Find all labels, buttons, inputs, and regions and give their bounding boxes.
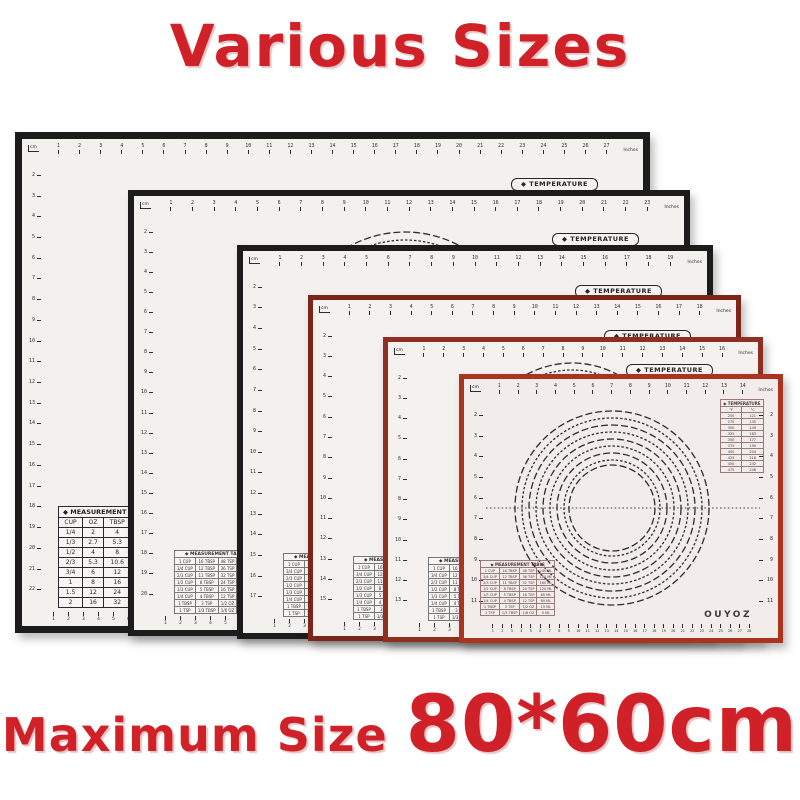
ruler-tick-mark [649,390,650,394]
ruler-tick-mark [374,150,375,154]
ruler-tick-mark [403,560,407,561]
ruler-tick-mark [495,207,496,211]
ruler-tick-mark [686,390,687,394]
ruler-tick: 23 [512,144,533,154]
ruler-tick: 11 [27,351,41,372]
ruler-tick: 22 [615,201,637,211]
ruler-tick-number: 15 [248,553,256,558]
ruler-tick-number: 22 [623,201,629,206]
ruler-tick-mark [149,292,153,293]
ruler-tick-number: 3 [82,617,85,622]
ruler-tick-number: 2 [78,144,81,149]
ruler-tick-mark [479,436,483,437]
ruler-tick-number: 14 [449,201,455,206]
ruler-tick-mark [279,262,280,266]
ruler-tick: 2 [509,384,528,394]
ruler-tick-mark [225,616,226,620]
measurement-table: ◆ MEASUREMENT TABLE1 CUP16 TBSP48 TSP240… [480,560,555,616]
ruler-tick-number: 7 [469,516,477,521]
ruler-tick-mark [561,262,562,266]
table-cell: 1/2 OZ [218,600,237,607]
ruler-tick-mark [328,478,332,479]
ruler-tick-number: 10 [248,450,256,455]
ruler-tick-number: 5 [139,290,147,295]
ruler-tick: 5 [218,616,233,626]
left-ruler: 2345678910111213141516171819202122 [27,165,41,600]
ruler-tick: 2 [282,619,297,629]
ruler-tick-mark [409,207,410,211]
table-cell: 12 TSP [218,593,237,600]
ruler-tick-number: 7 [184,144,187,149]
top-ruler: 1234567891011121314151617181920212223 [160,201,658,211]
ruler-tick-number: 8 [205,144,208,149]
table-cell: 1/2 CUP [284,582,305,589]
ruler-tick-number: 13 [248,512,256,517]
ruler-tick: 11 [139,403,153,423]
unit-label-cm: cm [394,348,405,355]
ruler-tick-mark [483,353,484,357]
ruler-tick-number: 21 [681,629,685,634]
table-cell: 1/2 CUP [175,579,196,586]
ruler-tick-number: 1 [278,256,281,261]
ruler-tick-mark [543,150,544,154]
table-cell: 1/3 TBSP [195,607,218,614]
ruler-tick: 8 [393,490,407,510]
ruler-tick-mark [149,332,153,333]
ruler-tick: 6 [393,449,407,469]
ruler-tick: 18 [406,144,427,154]
ruler-tick-mark [759,498,763,499]
ruler-tick-number: 2 [248,285,256,290]
ruler-tick-number: 22 [27,587,35,592]
table-cell: 48 TSP [218,558,237,565]
brand-logo: OUYOZ [704,610,752,620]
ruler-tick: 15 [692,347,712,357]
ruler-tick-number: 27 [738,629,742,634]
ruler-tick-number: 1 [169,201,172,206]
ruler-tick: 17 [139,524,153,544]
ruler-tick-mark [453,262,454,266]
ruler-tick-mark [328,599,332,600]
ruler-tick: 4 [474,347,494,357]
table-cell: 1 TBSP [284,603,305,610]
ruler-tick-number: 23 [519,144,525,149]
ruler-tick: 16 [648,305,669,315]
ruler-tick: 9 [217,144,238,154]
ruler-tick-number: 9 [648,384,651,389]
table-cell: 3/4 CUP [284,568,305,575]
table-header-row: ◆ TEMPERATURE [720,400,763,407]
ruler-tick-mark [300,207,301,211]
ruler-tick-number: 9 [318,476,326,481]
ruler-tick-number: 22 [690,629,694,634]
ruler-tick-number: 19 [27,525,35,530]
ruler-tick-number: 12 [595,629,599,634]
ruler-tick: 15 [573,256,595,266]
ruler-tick: 15 [248,545,262,566]
ruler-tick: 3 [139,242,153,262]
ruler-tick: 11 [545,305,566,315]
ruler-tick-mark [596,311,597,315]
ruler-tick: 1 [339,305,360,315]
ruler-tick: 1 [412,623,427,633]
ruler-tick-number: 7 [299,201,302,206]
table-row: 1/424 [59,528,131,538]
ruler-tick-mark [555,311,556,315]
ruler-tick-number: 10 [532,305,538,310]
table-row: 475246 [720,467,763,473]
ruler-tick-number: 10 [600,347,606,352]
ruler-tick-number: 25 [719,629,723,634]
ruler-tick-number: 6 [522,347,525,352]
ruler-tick-mark [258,369,262,370]
ruler-tick-mark [431,262,432,266]
ruler-tick: 15 [628,305,649,315]
ruler-tick: 9 [393,510,407,530]
ruler-tick-number: 12 [287,144,293,149]
ruler-tick-number: 6 [318,415,326,420]
table-header: ◆ TEMPERATURE [720,400,763,407]
ruler-tick-number: 6 [387,256,390,261]
ruler-tick-number: 2 [442,347,445,352]
table-cell: 24 TSP [218,579,237,586]
table-cell: 2/3 CUP [284,575,305,582]
ruler-tick-number: 11 [27,359,35,364]
ruler-tick-mark [654,624,655,628]
ruler-tick-number: 4 [209,621,212,626]
ruler-tick-number: 11 [266,144,272,149]
table-row: 21632 [59,598,131,608]
ruler-tick: 12 [633,347,653,357]
table-cell: 2/3 CUP [354,578,375,585]
ruler-tick-mark [521,624,522,628]
ruler-tick: 5 [469,467,483,488]
ruler-tick-number: 12 [27,380,35,385]
ruler-tick: 10 [759,571,773,592]
ruler-tick: 14 [607,305,628,315]
ruler-tick: 11 [486,256,508,266]
ruler-tick: 21 [470,144,491,154]
ruler-tick-number: 13 [139,451,147,456]
ruler-tick-number: 3 [469,434,477,439]
ruler-tick-number: 3 [511,629,513,634]
ruler-tick-mark [540,262,541,266]
ruler-tick-number: 7 [765,516,773,521]
ruler-tick: 10 [593,347,613,357]
ruler-tick: 19 [427,144,448,154]
ruler-tick-number: 5 [573,384,576,389]
ruler-tick-mark [514,311,515,315]
ruler-tick: 4 [225,201,247,211]
ruler-tick: 27 [735,624,745,634]
ruler-tick-number: 16 [602,256,608,261]
ruler-tick: 27 [596,144,617,154]
top-ruler: 12345678910111213141516 [414,347,732,357]
ruler-tick: 2 [434,347,454,357]
ruler-tick-number: 4 [248,326,256,331]
ruler-tick-mark [670,262,671,266]
ruler-tick-number: 18 [697,305,703,310]
ruler-tick-number: 8 [321,201,324,206]
ruler-tick-number: 3 [448,628,451,633]
ruler-tick-number: 16 [655,305,661,310]
ruler-tick-mark [522,150,523,154]
ruler-tick: 2 [352,622,367,632]
ruler-tick-mark [739,624,740,628]
ruler-tick-number: 14 [248,532,256,537]
ruler-tick-mark [149,573,153,574]
ruler-tick: 4 [469,446,483,467]
ruler-tick: 9 [248,421,262,442]
ruler-tick-mark [304,619,305,623]
table-cell: 16 [83,598,104,608]
ruler-tick-mark [606,150,607,154]
ruler-tick-number: 12 [702,384,708,389]
ruler-tick-number: 20 [27,546,35,551]
ruler-tick-number: 2 [358,627,361,632]
ruler-tick-number: 4 [343,256,346,261]
ruler-tick-mark [663,624,664,628]
ruler-tick-number: 13 [318,557,326,562]
ruler-tick-mark [536,390,537,394]
ruler-tick-number: 9 [469,558,477,563]
ruler-tick: 9 [139,363,153,383]
page-title: Various Sizes [0,12,800,80]
ruler-tick-number: 26 [582,144,588,149]
ruler-tick-mark [37,196,41,197]
product-collage: Various Sizes Maximum Size 80*60cm 12345… [0,0,800,800]
table-cell: 1 CUP [429,565,450,572]
ruler-tick-number: 2 [765,413,773,418]
ruler-tick-mark [37,258,41,259]
ruler-tick: 7 [27,269,41,290]
ruler-tick-number: 7 [471,305,474,310]
ruler-tick-number: 2 [300,256,303,261]
table-row: 2/35.310.6 [59,558,131,568]
ruler-tick-number: 4 [27,214,35,219]
table-cell: 1/6 OZ [520,610,537,616]
ruler-tick-mark [403,378,407,379]
ruler-tick: 14 [318,569,332,589]
ruler-tick-mark [79,150,80,154]
ruler-tick-number: 6 [539,629,541,634]
ruler-tick: 12 [280,144,301,154]
ruler-tick-number: 20 [579,201,585,206]
ruler-tick: 14 [248,525,262,546]
ruler-tick-number: 11 [393,558,401,563]
table-cell: 10.6 [104,558,131,568]
ruler-tick-mark [759,539,763,540]
ruler-tick-number: 19 [662,629,666,634]
ruler-tick-number: 6 [591,384,594,389]
ruler-tick-mark [149,433,153,434]
unit-label-cm: cm [140,202,151,209]
ruler-tick-number: 16 [27,463,35,468]
ruler-tick: 10 [27,331,41,352]
ruler-tick-mark [258,472,262,473]
ruler-tick-number: 12 [515,256,521,261]
ruler-tick: 15 [27,434,41,455]
ruler-tick-mark [702,353,703,357]
ruler-tick-number: 1 [164,621,167,626]
ruler-tick-mark [603,207,604,211]
ruler-tick-mark [149,413,153,414]
ruler-tick-number: 2 [67,617,70,622]
ruler-tick-mark [258,390,262,391]
ruler-tick-number: 14 [318,577,326,582]
ruler-tick-mark [344,622,345,626]
ruler-tick-number: 2 [517,384,520,389]
ruler-tick-mark [403,600,407,601]
ruler-tick: 2 [427,623,442,633]
ruler-tick: 4 [393,409,407,429]
ruler-tick: 9 [759,550,773,571]
ruler-tick-mark [511,624,512,628]
table-cell: 8 TBSP [195,579,218,586]
ruler-tick-number: 9 [568,629,570,634]
ruler-tick-number: 14 [614,305,620,310]
ruler-tick-number: 12 [573,305,579,310]
ruler-tick-number: 13 [594,305,600,310]
ruler-tick: 3 [90,144,111,154]
ruler-tick-mark [53,612,54,616]
table-cell: 1/2 CUP [429,586,450,593]
ruler-tick: 11 [248,463,262,484]
ruler-tick-mark [723,390,724,394]
ruler-tick: 8 [483,305,504,315]
ruler-tick-mark [530,624,531,628]
ruler-tick-mark [328,579,332,580]
table-cell: 32 TSP [218,572,237,579]
ruler-tick: 7 [248,380,262,401]
ruler-tick-number: 3 [389,305,392,310]
ruler-tick-number: 16 [139,511,147,516]
ruler-tick: 6 [759,488,773,509]
ruler-tick: 13 [393,591,407,611]
ruler-tick: 11 [318,509,332,529]
table-column-label: TBSP [104,518,131,528]
ruler-tick: 3 [527,384,546,394]
table-cell: 1/4 CUP [175,593,196,600]
ruler-tick: 19 [139,564,153,584]
ruler-tick-number: 3 [27,194,35,199]
ruler-tick-number: 20 [456,144,462,149]
table-cell: 8 [104,548,131,558]
ruler-tick: 9 [640,384,659,394]
bottom-ruler: 1234567891011121314151617181920212223242… [488,624,754,634]
table-row: 1/248 [59,548,131,558]
ruler-tick: 15 [139,483,153,503]
ruler-tick: 25 [554,144,575,154]
ruler-tick: 11 [393,550,407,570]
ruler-tick-mark [582,207,583,211]
ruler-tick-number: 13 [308,144,314,149]
ruler-tick-mark [518,390,519,394]
ruler-tick: 1 [488,624,498,634]
ruler-tick-number: 7 [248,388,256,393]
ruler-tick: 7 [174,144,195,154]
table-cell: 1.5 [59,588,83,598]
ruler-tick-number: 11 [248,470,256,475]
ruler-tick-mark [492,624,493,628]
ruler-tick-number: 1 [348,305,351,310]
table-column-label: CUP [59,518,83,528]
table-cell: 3/4 CUP [429,572,450,579]
ruler-tick-mark [555,390,556,394]
ruler-tick-number: 9 [452,256,455,261]
ruler-tick: 6 [268,201,290,211]
ruler-tick-mark [602,353,603,357]
table-header-row: ◆ MEASUREMENT TABLE [481,561,555,568]
ruler-tick-number: 2 [368,305,371,310]
ruler-tick-number: 4 [318,374,326,379]
ruler-tick-number: 2 [393,376,401,381]
ruler-tick-number: 12 [248,491,256,496]
ruler-tick-number: 10 [363,201,369,206]
ruler-tick: 1 [48,144,69,154]
ruler-tick-mark [452,311,453,315]
ruler-tick: 7 [545,624,555,634]
table-cell: 1/2 CUP [354,585,375,592]
ruler-tick: 3 [367,622,382,632]
ruler-tick-number: 17 [624,256,630,261]
ruler-tick-number: 6 [248,367,256,372]
footer-caption-text: Maximum Size [2,708,388,762]
ruler-tick-number: 18 [139,551,147,556]
table-cell: 1/4 CUP [429,600,450,607]
ruler-tick-mark [658,311,659,315]
ruler-tick: 8 [248,401,262,422]
ruler-tick: 3 [76,612,91,622]
ruler-tick-mark [37,423,41,424]
table-cell: 2/3 CUP [175,572,196,579]
footer-caption: Maximum Size 80*60cm [0,680,800,770]
ruler-tick-mark [543,353,544,357]
ruler-tick: 2 [69,144,90,154]
ruler-tick: 1 [269,256,291,266]
ruler-tick-mark [328,437,332,438]
ruler-tick-mark [353,150,354,154]
ruler-tick-number: 5 [530,629,532,634]
table-cell: 1 TBSP [429,607,450,614]
ruler-tick-mark [344,262,345,266]
table-cell: 1/3 CUP [284,589,305,596]
ruler-tick-number: 15 [351,144,357,149]
ruler-tick-number: 11 [586,629,590,634]
table-cell: 24 [104,588,131,598]
ruler-tick: 21 [593,201,615,211]
measurement-table: ◆ MEASUREMENTCUPOZTBSP1/4241/32.75.31/24… [58,506,131,608]
ruler-tick-number: 5 [256,201,259,206]
ruler-tick-mark [258,411,262,412]
ruler-tick: 24 [533,144,554,154]
ruler-tick-mark [37,299,41,300]
ruler-tick-mark [574,390,575,394]
ruler-tick: 4 [334,256,356,266]
ruler-tick: 17 [616,256,638,266]
ruler-tick-number: 13 [393,598,401,603]
ruler-tick-mark [328,356,332,357]
ruler-tick: 10 [318,488,332,508]
ruler-tick-number: 17 [139,531,147,536]
table-cell: 2 [83,528,104,538]
ruler-tick: 12 [696,384,715,394]
table-cell: 5.3 [104,538,131,548]
table-cell: 12 [83,588,104,598]
ruler-tick-mark [258,431,262,432]
left-ruler: 234567891011121314151617 [248,277,262,607]
top-ruler: 12345678910111213141516171819 [269,256,681,266]
